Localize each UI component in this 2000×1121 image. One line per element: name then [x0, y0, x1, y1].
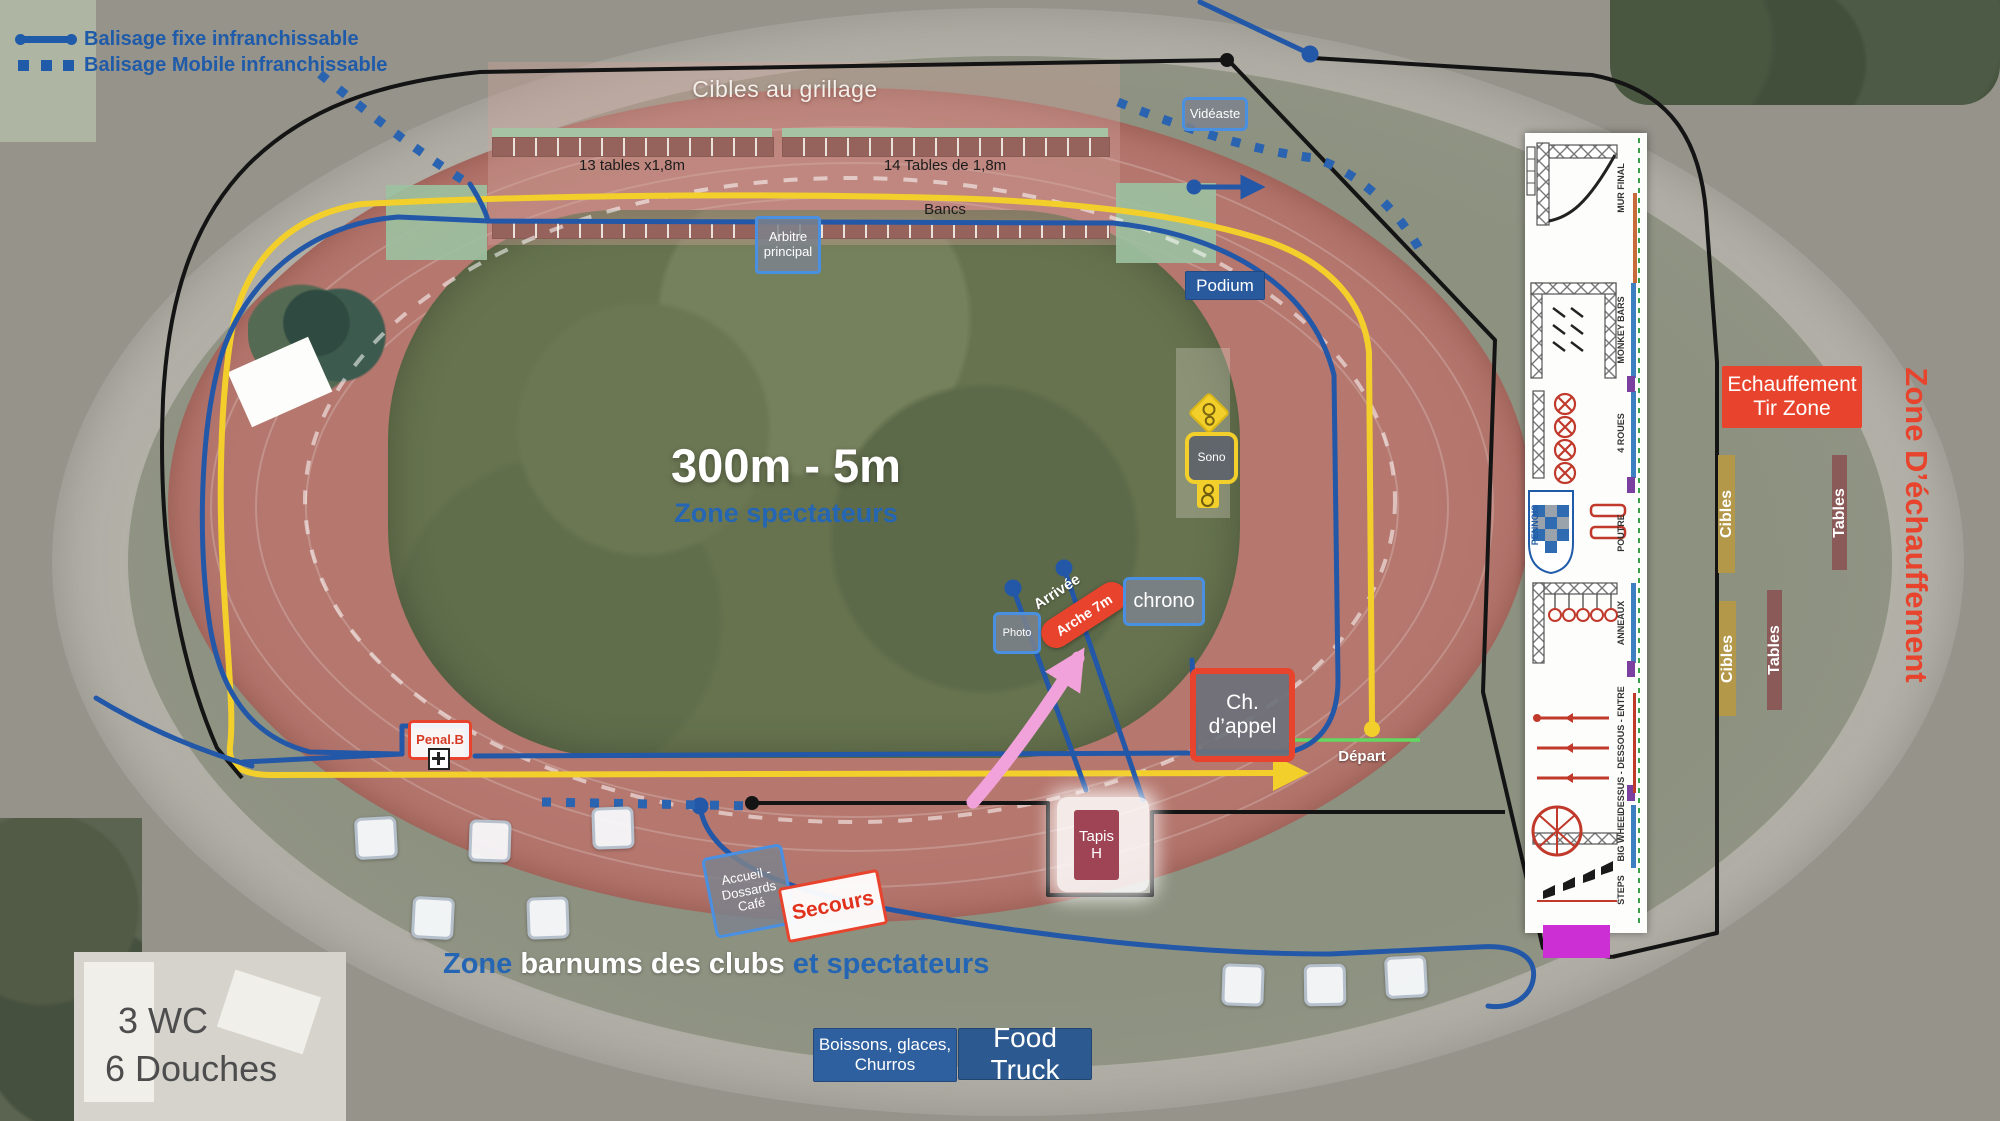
legend: Balisage fixe infranchissable Balisage M…	[18, 26, 387, 78]
barnum-tent	[1304, 964, 1347, 1007]
boissons-label-2: Churros	[855, 1055, 915, 1075]
warmup-zone-title: Zone D’échauffement	[1898, 367, 1934, 682]
station-monkey-bars	[1531, 283, 1616, 378]
dotted-line-icon	[18, 60, 74, 71]
photo-label: Photo	[1003, 627, 1032, 640]
plus-icon	[428, 748, 450, 770]
wc-label: 3 WC	[118, 1000, 208, 1042]
videaste-marker[interactable]: Vidéaste	[1182, 97, 1248, 131]
station-label-poutre: POUTRE	[1616, 514, 1626, 552]
cibles-label: Cibles	[1718, 490, 1736, 538]
chrono-label: chrono	[1133, 590, 1194, 613]
station-big-wheel	[1533, 807, 1617, 855]
barnum-tent	[411, 896, 455, 940]
club-logo-label: PENNOIS	[1530, 505, 1540, 546]
photo-marker[interactable]: Photo	[993, 612, 1041, 654]
cibles-label: Cibles	[1719, 634, 1737, 682]
legend-fixed-label: Balisage fixe infranchissable	[84, 28, 359, 51]
station-anneaux	[1533, 583, 1617, 663]
boissons-stand[interactable]: Boissons, glaces, Churros	[813, 1028, 957, 1082]
barnum-tent	[354, 816, 398, 860]
spectators-zone-label: Zone spectateurs	[674, 498, 898, 529]
legend-mobile: Balisage Mobile infranchissable	[18, 52, 387, 78]
magenta-zone	[1543, 925, 1610, 958]
barnums-part1: Zone	[443, 948, 520, 980]
tapis-marker[interactable]: Tapis H	[1074, 810, 1119, 880]
tables-strip: Tables	[1832, 455, 1847, 570]
station-4-roues	[1533, 391, 1575, 483]
barnum-tent	[1221, 963, 1264, 1006]
videaste-label: Vidéaste	[1190, 107, 1240, 122]
food-truck-label: Food Truck	[959, 1022, 1091, 1086]
barnum-tent	[1384, 955, 1428, 999]
barnum-tent	[591, 806, 634, 849]
barnums-part2: barnums des clubs	[520, 948, 792, 980]
chrono-marker[interactable]: chrono	[1123, 577, 1205, 626]
call-room-marker[interactable]: Ch. d’appel	[1190, 668, 1295, 762]
tir-label-2: Tir Zone	[1753, 397, 1830, 421]
tapis-label-1: Tapis	[1079, 828, 1114, 845]
obstacle-course-panel: PENNOIS	[1525, 133, 1647, 933]
station-labels: MUR FINAL MONKEY BARS 4 ROUES POUTRE ANN…	[1616, 163, 1626, 905]
podium-marker[interactable]: Podium	[1185, 271, 1265, 300]
legend-fixed: Balisage fixe infranchissable	[18, 26, 387, 52]
accueil-label-3: Café	[737, 896, 767, 916]
speaker-icon	[1197, 481, 1219, 508]
event-plan: Balisage fixe infranchissable Balisage M…	[0, 0, 2000, 1121]
edge-marks	[1627, 193, 1637, 868]
podium-label: Podium	[1196, 276, 1254, 296]
douches-label: 6 Douches	[105, 1048, 277, 1090]
station-label-steps: STEPS	[1616, 875, 1626, 905]
station-label-big-wheel: BIG WHEEL	[1616, 810, 1626, 862]
cibles-strip: Cibles	[1718, 455, 1735, 573]
food-truck-stand[interactable]: Food Truck	[958, 1028, 1092, 1080]
station-mur-final	[1527, 143, 1617, 225]
station-label-mur-final: MUR FINAL	[1616, 163, 1626, 213]
secours-label: Secours	[790, 886, 876, 926]
barnums-part3: et spectateurs	[793, 948, 990, 980]
depart-label: Départ	[1338, 748, 1386, 765]
barnums-zone-label: Zone barnums des clubs et spectateurs	[443, 948, 989, 981]
cibles-strip: Cibles	[1719, 601, 1736, 716]
boissons-label-1: Boissons, glaces,	[819, 1035, 951, 1055]
station-label-dessus-dessous: DESSUS - DESSOUS - ENTRE	[1616, 686, 1626, 814]
shooting-zone-title: Cibles au grillage	[692, 76, 877, 103]
call-room-label-1: Ch.	[1226, 691, 1259, 715]
penal-label: Penal.B	[416, 733, 464, 748]
call-room-label-2: d’appel	[1209, 715, 1277, 739]
station-label-anneaux: ANNEAUX	[1616, 601, 1626, 646]
warmup-shooting-marker[interactable]: Echauffement Tir Zone	[1722, 366, 1862, 428]
tables-label: Tables	[1766, 625, 1784, 675]
station-dessus-dessous-entre	[1533, 713, 1609, 783]
obstacle-course-diagram: PENNOIS	[1525, 133, 1647, 933]
solid-line-icon	[18, 36, 74, 43]
legend-mobile-label: Balisage Mobile infranchissable	[84, 54, 387, 77]
station-steps	[1537, 861, 1617, 901]
sono-marker[interactable]: Sono	[1185, 432, 1238, 484]
tapis-label-2: H	[1091, 845, 1102, 862]
course-length-label: 300m - 5m	[671, 438, 901, 493]
station-label-monkey-bars: MONKEY BARS	[1616, 296, 1626, 363]
benches-label: Bancs	[924, 201, 966, 218]
sono-label: Sono	[1197, 451, 1225, 465]
arbitre-label-2: principal	[764, 245, 812, 260]
tables-strip: Tables	[1767, 590, 1782, 710]
club-shield-logo: PENNOIS	[1529, 491, 1573, 573]
left-tables-label: 13 tables x1,8m	[579, 157, 685, 174]
tir-label-1: Echauffement	[1727, 373, 1856, 397]
tables-label: Tables	[1831, 488, 1849, 538]
barnum-tent	[468, 819, 511, 862]
barnum-tent	[526, 896, 569, 939]
arbitre-label-1: Arbitre	[769, 230, 807, 245]
right-tables-label: 14 Tables de 1,8m	[884, 157, 1006, 174]
station-label-4-roues: 4 ROUES	[1616, 413, 1626, 453]
arbitre-marker[interactable]: Arbitre principal	[755, 216, 821, 274]
